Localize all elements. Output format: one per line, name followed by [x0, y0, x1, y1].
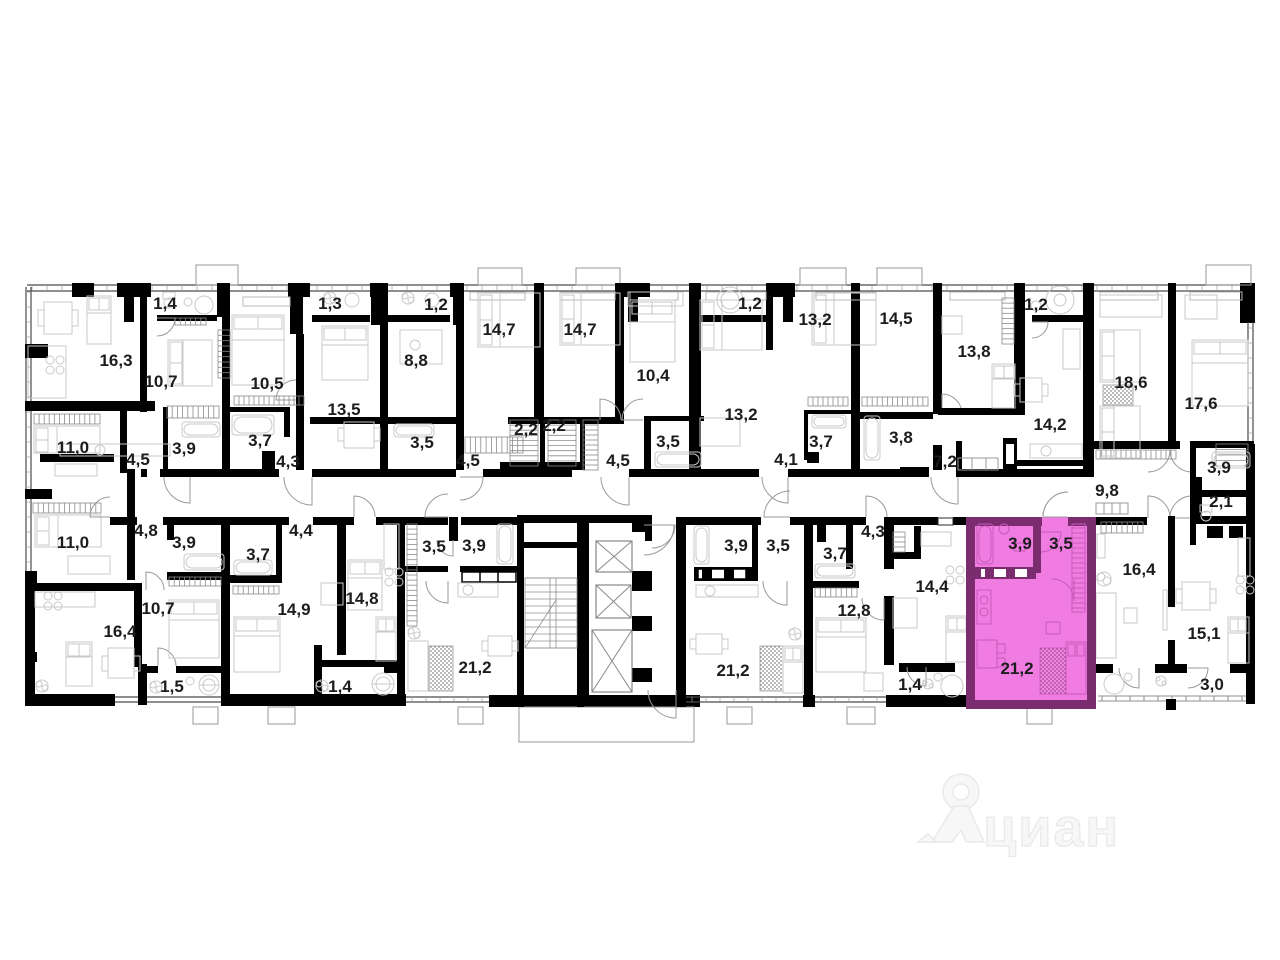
svg-text:4,4: 4,4: [289, 521, 313, 540]
svg-text:3,7: 3,7: [246, 545, 270, 564]
svg-text:2,1: 2,1: [1209, 492, 1233, 511]
svg-text:2,2: 2,2: [514, 420, 538, 439]
svg-text:13,2: 13,2: [798, 310, 831, 329]
svg-text:4,5: 4,5: [126, 450, 150, 469]
svg-text:1,4: 1,4: [898, 675, 922, 694]
svg-text:21,2: 21,2: [716, 661, 749, 680]
svg-text:15,1: 15,1: [1187, 624, 1220, 643]
svg-text:3,7: 3,7: [809, 432, 833, 451]
svg-text:10,7: 10,7: [141, 599, 174, 618]
svg-text:3,7: 3,7: [248, 431, 272, 450]
svg-text:3,9: 3,9: [172, 533, 196, 552]
svg-text:4,3: 4,3: [861, 522, 885, 541]
svg-text:4,5: 4,5: [606, 451, 630, 470]
svg-text:10,7: 10,7: [144, 372, 177, 391]
svg-text:3,5: 3,5: [422, 537, 446, 556]
svg-text:14,5: 14,5: [879, 309, 912, 328]
svg-text:16,3: 16,3: [99, 351, 132, 370]
svg-text:3,9: 3,9: [1207, 458, 1231, 477]
svg-text:циан: циан: [983, 798, 1120, 858]
svg-text:13,8: 13,8: [957, 342, 990, 361]
svg-text:4,3: 4,3: [276, 452, 300, 471]
svg-text:1,2: 1,2: [738, 294, 762, 313]
svg-text:13,2: 13,2: [724, 405, 757, 424]
svg-text:1,4: 1,4: [328, 677, 352, 696]
svg-text:11,0: 11,0: [57, 438, 89, 457]
svg-text:21,2: 21,2: [1000, 659, 1033, 678]
svg-text:14,8: 14,8: [345, 589, 378, 608]
svg-text:3,9: 3,9: [172, 439, 196, 458]
svg-text:13,5: 13,5: [327, 400, 360, 419]
svg-text:3,7: 3,7: [823, 544, 847, 563]
svg-text:18,6: 18,6: [1114, 373, 1147, 392]
svg-text:8,8: 8,8: [404, 351, 428, 370]
svg-text:3,5: 3,5: [1049, 534, 1073, 553]
svg-text:1,2: 1,2: [1024, 295, 1048, 314]
svg-text:4,5: 4,5: [456, 451, 480, 470]
svg-text:7,2: 7,2: [933, 452, 957, 471]
svg-text:3,9: 3,9: [1008, 534, 1032, 553]
svg-text:3,9: 3,9: [462, 536, 486, 555]
svg-text:14,7: 14,7: [482, 320, 515, 339]
svg-text:17,6: 17,6: [1184, 394, 1217, 413]
svg-text:3,5: 3,5: [656, 432, 680, 451]
svg-text:3,5: 3,5: [410, 433, 434, 452]
svg-text:14,9: 14,9: [277, 600, 310, 619]
svg-text:14,7: 14,7: [563, 320, 596, 339]
svg-text:4,8: 4,8: [134, 521, 158, 540]
svg-text:14,4: 14,4: [915, 577, 949, 596]
svg-text:3,9: 3,9: [724, 536, 748, 555]
svg-text:1,3: 1,3: [318, 294, 342, 313]
svg-text:3,0: 3,0: [1200, 675, 1224, 694]
svg-text:1,2: 1,2: [424, 295, 448, 314]
svg-text:3,5: 3,5: [766, 536, 790, 555]
svg-text:1,4: 1,4: [153, 294, 177, 313]
svg-text:16,4: 16,4: [1122, 560, 1156, 579]
svg-text:12,8: 12,8: [837, 601, 870, 620]
svg-text:10,4: 10,4: [636, 366, 670, 385]
svg-text:2,2: 2,2: [542, 416, 566, 435]
svg-text:1,5: 1,5: [160, 677, 184, 696]
svg-text:10,5: 10,5: [250, 374, 283, 393]
svg-text:3,8: 3,8: [889, 428, 913, 447]
svg-text:9,8: 9,8: [1095, 481, 1119, 500]
svg-text:14,2: 14,2: [1033, 415, 1066, 434]
svg-text:4,1: 4,1: [774, 450, 798, 469]
svg-text:16,4: 16,4: [103, 622, 137, 641]
svg-text:21,2: 21,2: [458, 658, 491, 677]
svg-text:11,0: 11,0: [57, 533, 89, 552]
